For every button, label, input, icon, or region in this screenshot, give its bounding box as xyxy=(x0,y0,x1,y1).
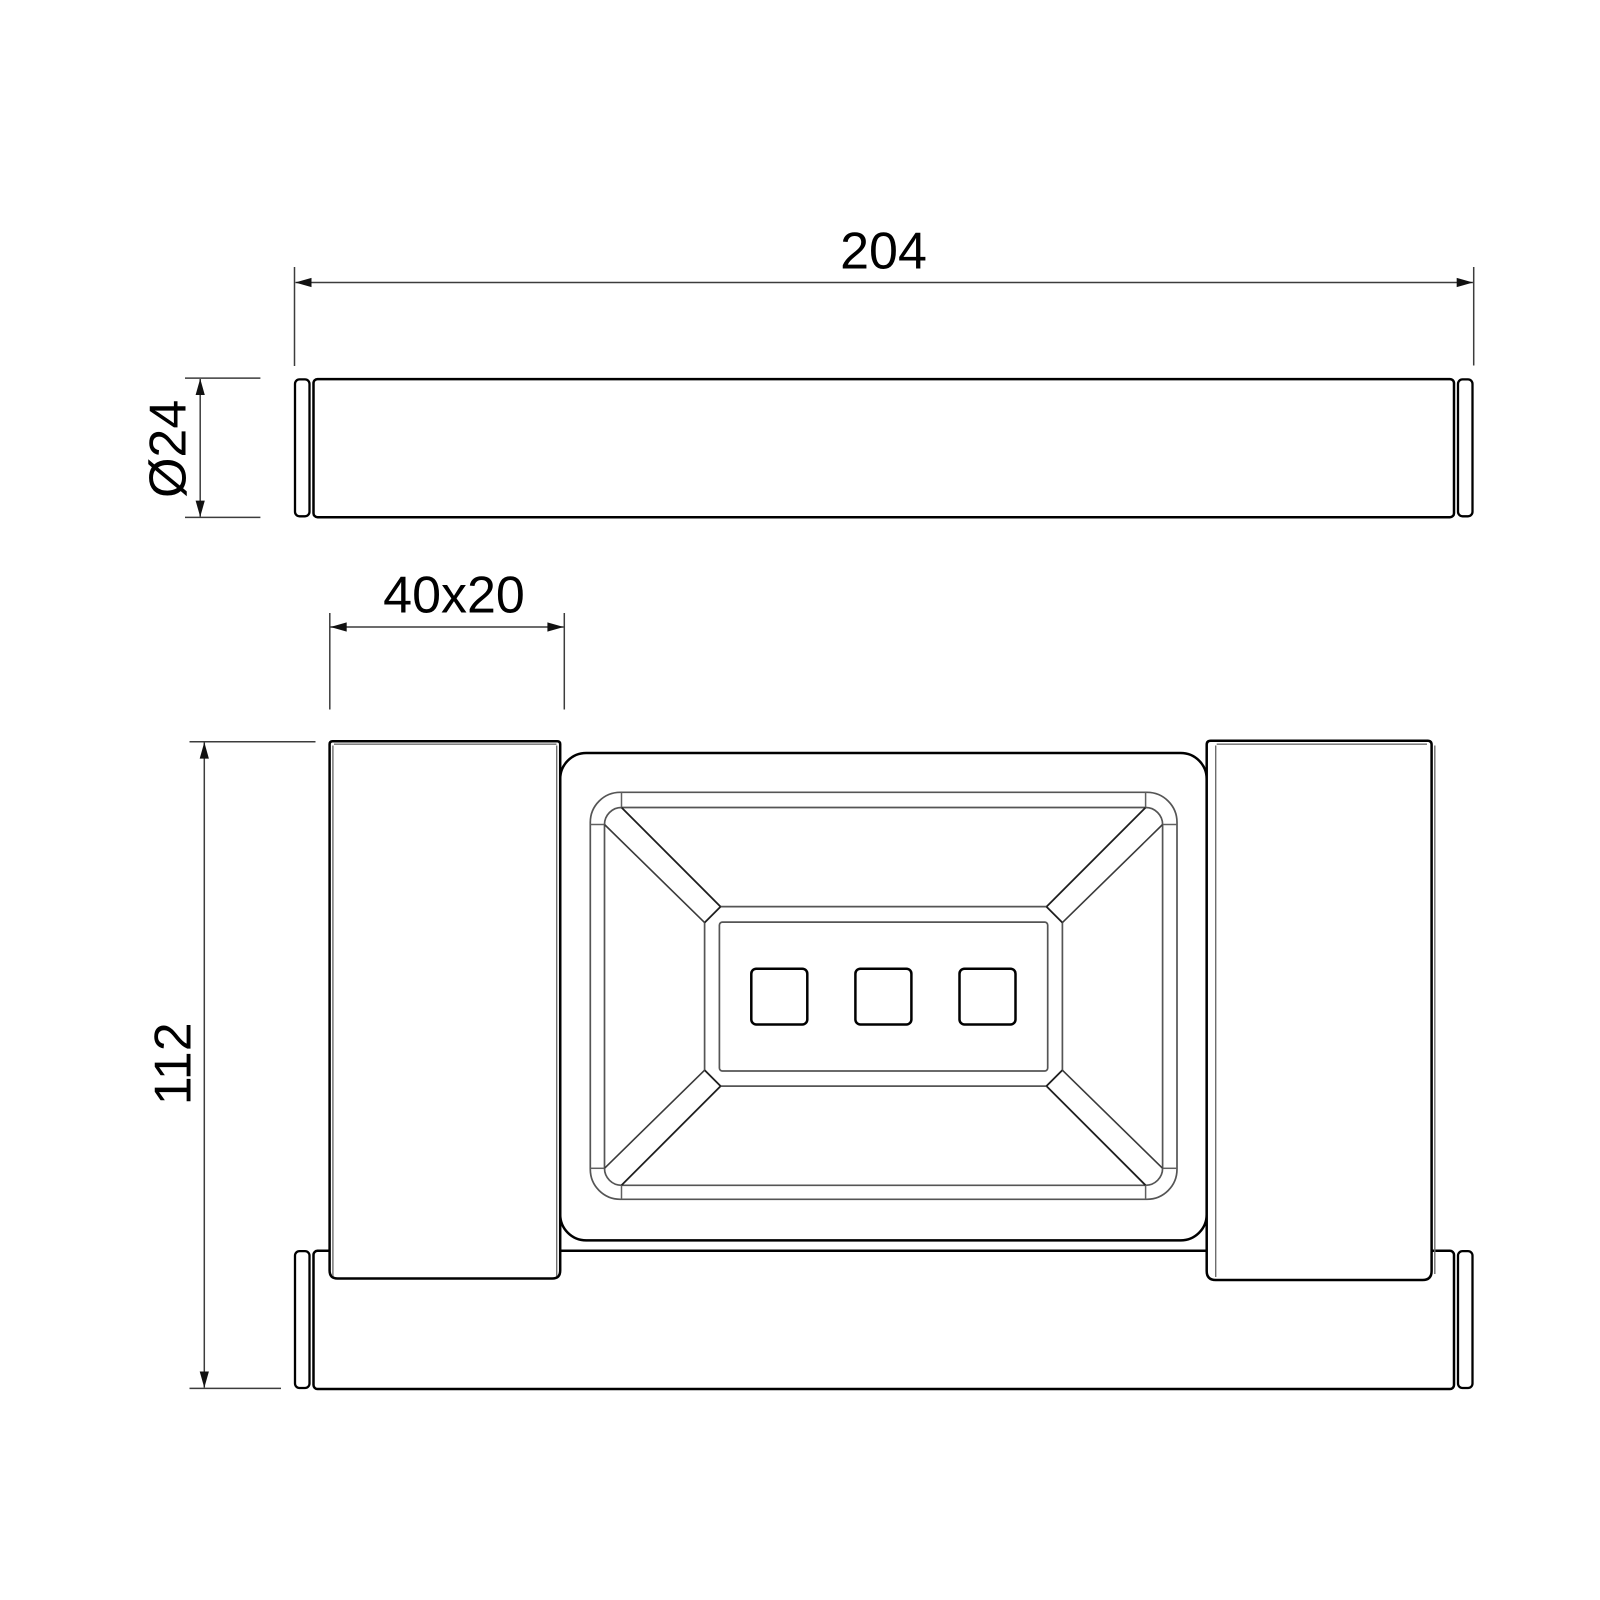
svg-text:204: 204 xyxy=(840,223,927,281)
svg-text:112: 112 xyxy=(145,1022,203,1105)
svg-text:Ø24: Ø24 xyxy=(140,400,198,498)
svg-text:40x20: 40x20 xyxy=(383,567,525,625)
